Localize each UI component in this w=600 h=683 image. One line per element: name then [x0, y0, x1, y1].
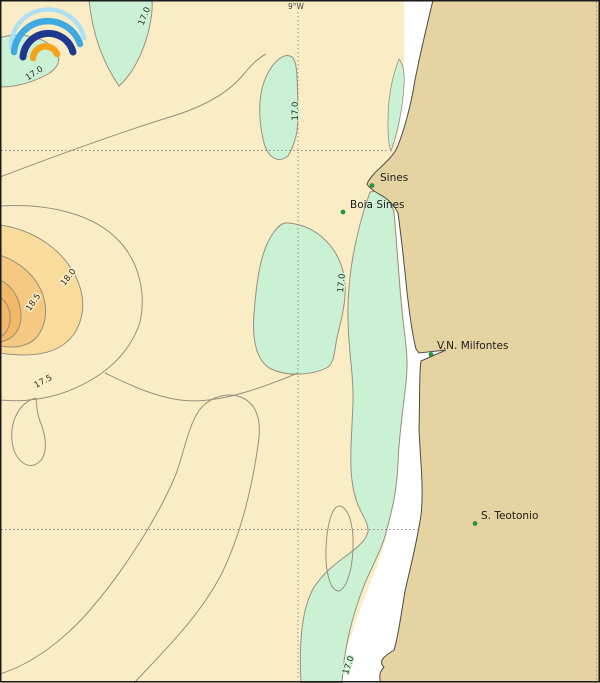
- place-vn-milfontes-label: V.N. Milfontes: [437, 340, 508, 352]
- contour-label-17-0-central: 17.0: [336, 273, 348, 293]
- place-s-teotonio-label: S. Teotonio: [481, 510, 538, 522]
- contour-label-17-0-offshore: 17.0: [291, 102, 301, 121]
- place-boia-sines-marker: [341, 210, 345, 214]
- place-sines-label: Sines: [380, 172, 408, 184]
- meridian-label: 9°W: [288, 2, 305, 11]
- place-boia-sines-label: Boia Sines: [350, 199, 404, 211]
- sst-map: 9°W 17.0 17.0 17.0 17.0 17.0 17.5 18.0 1…: [0, 0, 600, 683]
- place-vn-milfontes-marker: [429, 353, 433, 357]
- place-sines-marker: [370, 184, 374, 188]
- place-s-teotonio-marker: [473, 522, 477, 526]
- map-canvas: 9°W 17.0 17.0 17.0 17.0 17.0 17.5 18.0 1…: [0, 0, 600, 683]
